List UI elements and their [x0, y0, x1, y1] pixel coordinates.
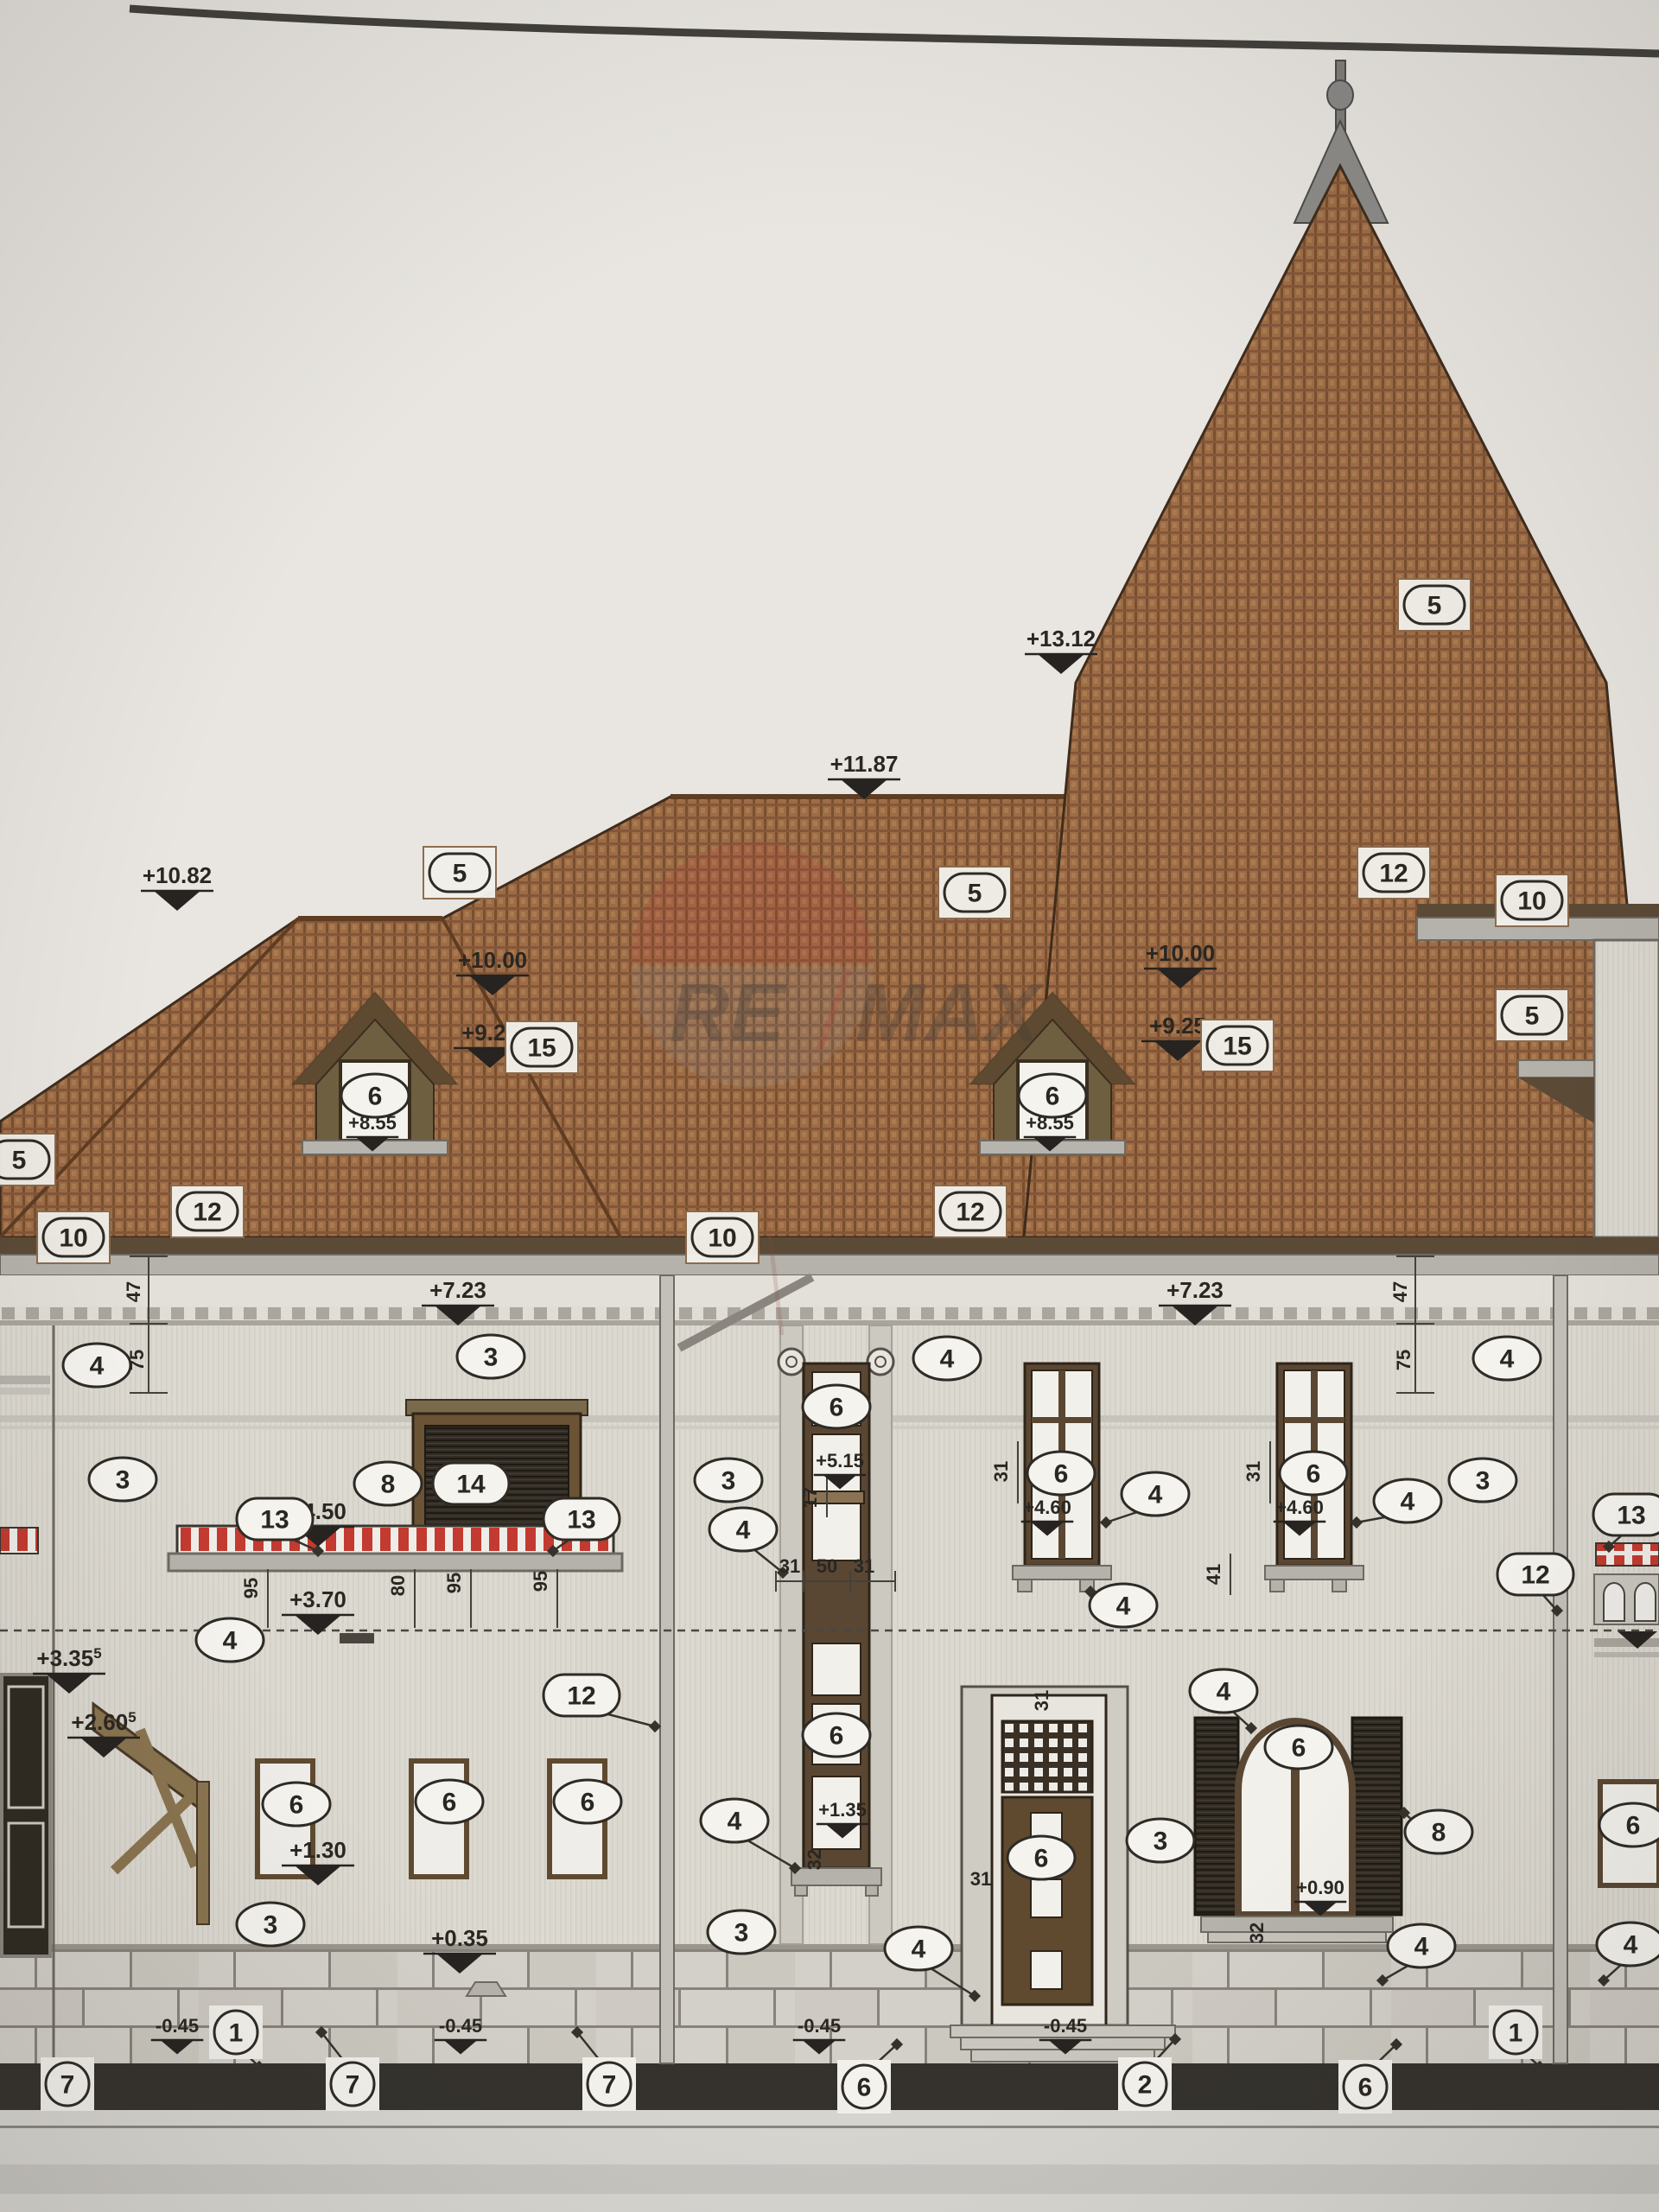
photo-artifacts — [0, 0, 1659, 2212]
elevation-drawing-svg: RE MAX +13.12+11.87+10.82+10.00+9.25+10.… — [0, 0, 1659, 2212]
photographed-drawing-screen: RE MAX +13.12+11.87+10.82+10.00+9.25+10.… — [0, 0, 1659, 2212]
vignette — [0, 0, 1659, 2212]
